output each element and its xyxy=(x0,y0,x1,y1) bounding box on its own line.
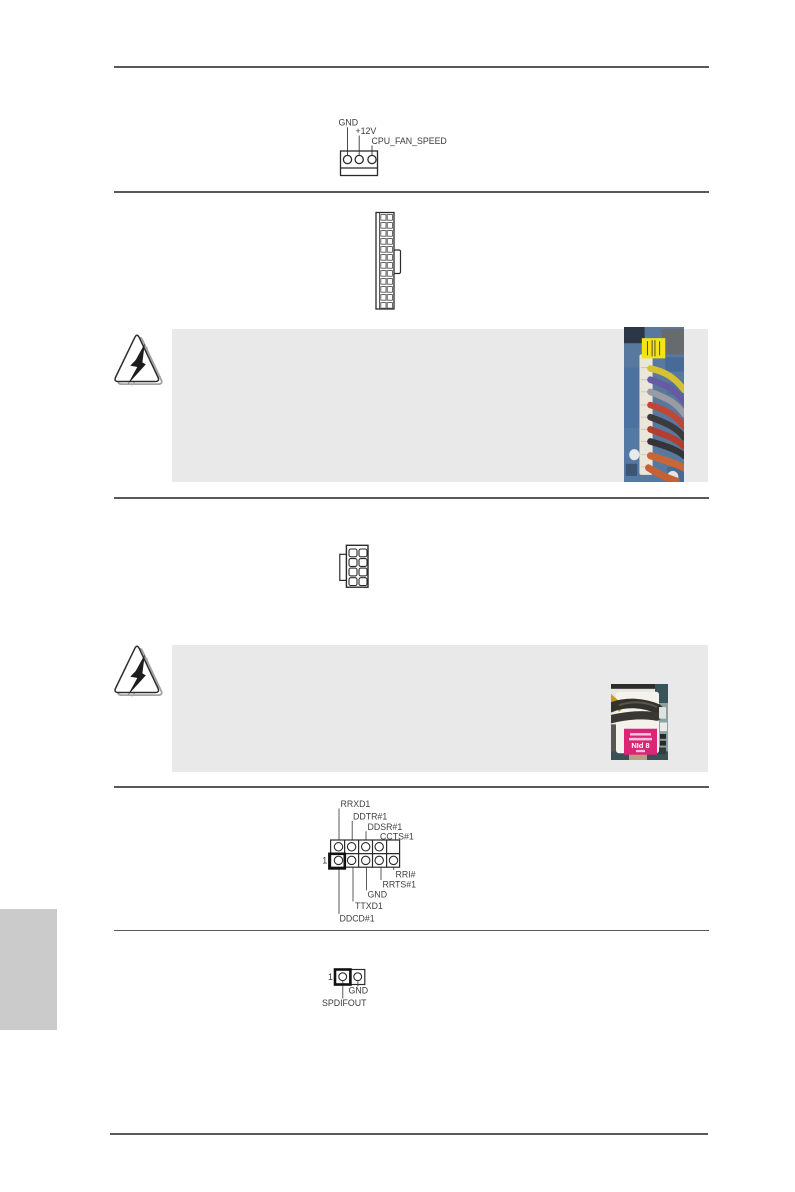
svg-text:GND: GND xyxy=(349,986,369,996)
svg-text:RRXD1: RRXD1 xyxy=(341,799,371,809)
svg-text:CPU_FAN_SPEED: CPU_FAN_SPEED xyxy=(372,136,447,146)
svg-text:SPDIFOUT: SPDIFOUT xyxy=(322,998,367,1008)
svg-text:DDTR#1: DDTR#1 xyxy=(353,812,387,822)
svg-text:1: 1 xyxy=(322,856,327,866)
svg-text:TTXD1: TTXD1 xyxy=(355,901,383,911)
svg-text:RRTS#1: RRTS#1 xyxy=(383,880,417,890)
svg-text:DDCD#1: DDCD#1 xyxy=(340,914,375,924)
svg-text:NId 8: NId 8 xyxy=(631,741,649,750)
svg-text:+12V: +12V xyxy=(356,126,377,136)
svg-text:1: 1 xyxy=(328,972,333,982)
svg-text:DDSR#1: DDSR#1 xyxy=(368,822,403,832)
svg-text:GND: GND xyxy=(368,890,388,900)
svg-text:RRI#: RRI# xyxy=(396,870,416,880)
